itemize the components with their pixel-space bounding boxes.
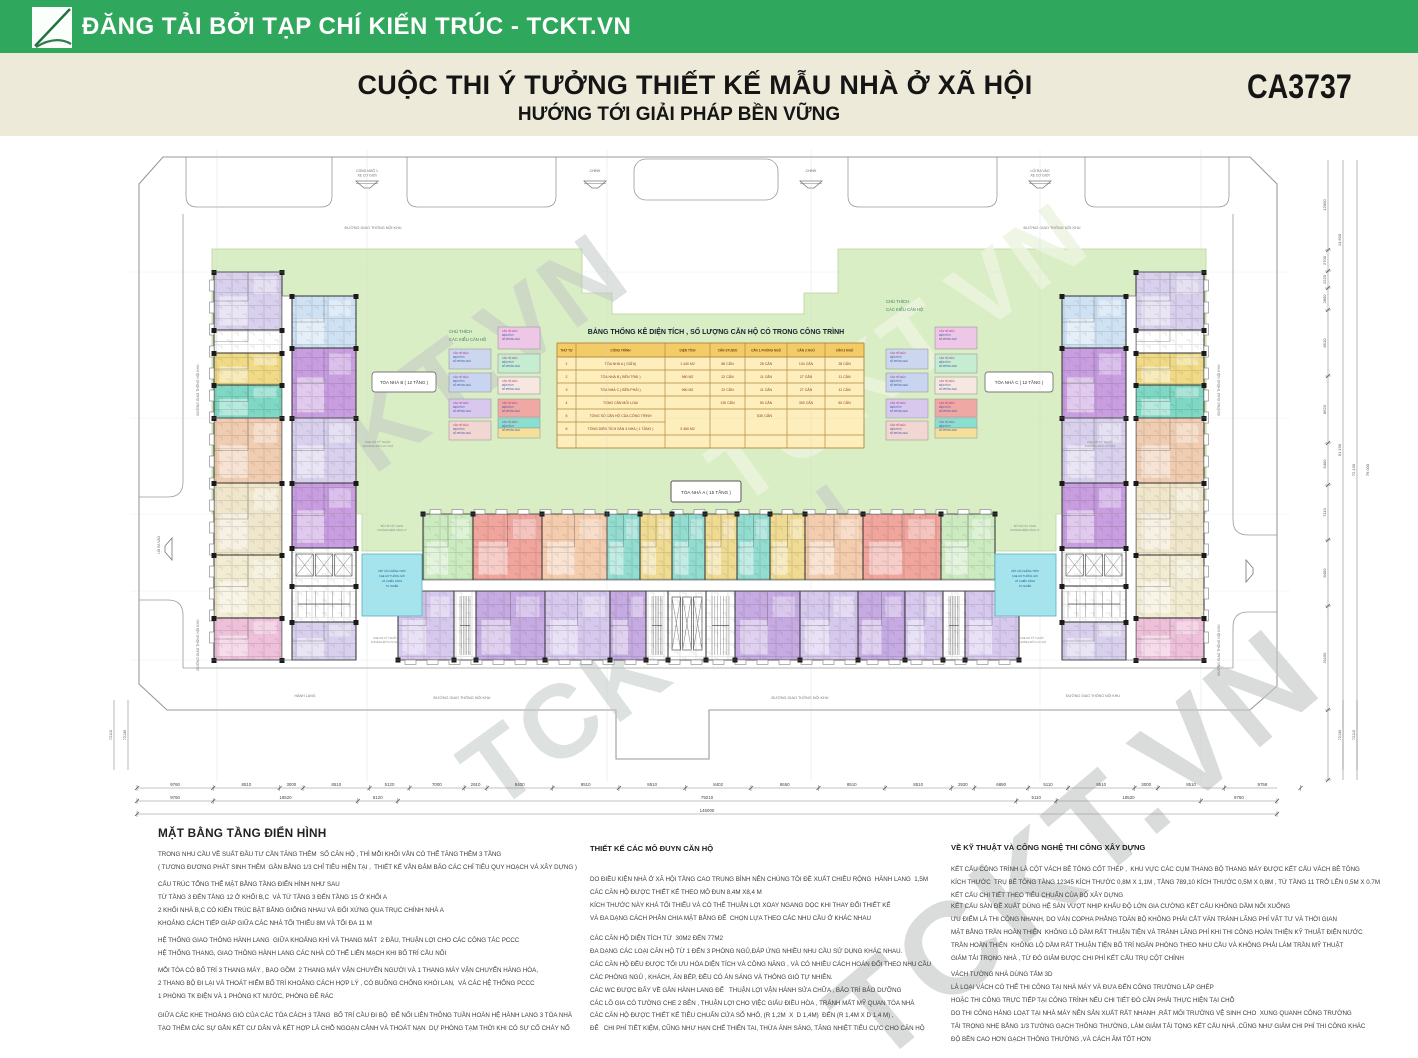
svg-text:DIỆN TÍCH: DIỆN TÍCH — [502, 361, 514, 364]
svg-text:DIỆN TÍCH: DIỆN TÍCH — [939, 361, 951, 364]
svg-text:22 CĂN: 22 CĂN — [721, 388, 734, 392]
svg-text:2930: 2930 — [958, 782, 968, 787]
svg-text:DIỆN TÍCH: DIỆN TÍCH — [453, 406, 465, 409]
svg-text:6890: 6890 — [996, 782, 1006, 787]
svg-text:12000: 12000 — [1322, 199, 1327, 211]
svg-text:CĂN HỘ KIỂU: CĂN HỘ KIỂU — [939, 402, 955, 405]
svg-text:ĐƯỜNG GIAO THÔNG NỘI KHU: ĐƯỜNG GIAO THÔNG NỘI KHU — [195, 619, 200, 671]
svg-text:76 000: 76 000 — [1365, 463, 1370, 476]
svg-text:ĐƯỜNG GIAO THÔNG NỘI KHU: ĐƯỜNG GIAO THÔNG NỘI KHU — [1066, 693, 1120, 698]
svg-text:DIỆN TÍCH: DIỆN TÍCH — [680, 348, 697, 353]
svg-text:CHÚ THÍCH: CHÚ THÍCH — [449, 329, 472, 334]
svg-text:CĂN HỘ KIỂU: CĂN HỘ KIỂU — [502, 402, 518, 405]
svg-text:9760: 9760 — [170, 782, 180, 787]
svg-text:CĂN HỘ KIỂU: CĂN HỘ KIỂU — [939, 380, 955, 383]
svg-text:22 CĂN: 22 CĂN — [721, 375, 734, 379]
svg-text:SỐ PHÒNG NGỦ: SỐ PHÒNG NGỦ — [890, 410, 908, 413]
svg-text:CĂN HỘ KIỂU: CĂN HỘ KIỂU — [890, 352, 906, 355]
svg-text:CĂN 2 NGỦ: CĂN 2 NGỦ — [797, 348, 815, 353]
svg-text:LỐI RA VÀO: LỐI RA VÀO — [156, 536, 161, 554]
svg-text:8402: 8402 — [713, 782, 723, 787]
svg-text:27 CĂN: 27 CĂN — [800, 388, 813, 392]
svg-text:146000: 146000 — [700, 808, 715, 813]
svg-text:CÁC KIỂU CĂN HỘ: CÁC KIỂU CĂN HỘ — [449, 337, 487, 342]
svg-text:8510: 8510 — [847, 782, 857, 787]
svg-text:5400: 5400 — [1322, 459, 1327, 469]
svg-text:8510: 8510 — [1186, 782, 1196, 787]
svg-text:SỐ PHÒNG NGỦ: SỐ PHÒNG NGỦ — [502, 365, 520, 368]
svg-text:3 460 M2: 3 460 M2 — [680, 427, 695, 431]
svg-text:50 CĂN: 50 CĂN — [760, 401, 773, 405]
svg-text:DIỆN TÍCH: DIỆN TÍCH — [453, 380, 465, 383]
svg-text:79210: 79210 — [701, 795, 714, 800]
svg-text:3000: 3000 — [286, 782, 296, 787]
svg-text:ĐƯỜNG GIAO THÔNG NỘI KHU: ĐƯỜNG GIAO THÔNG NỘI KHU — [1023, 225, 1080, 230]
svg-text:CĂN HỘ KIỂU: CĂN HỘ KIỂU — [939, 330, 955, 333]
svg-text:8400: 8400 — [515, 782, 525, 787]
svg-text:2: 2 — [566, 375, 568, 379]
svg-text:ĐƯỜNG GIAO THÔNG NỘI KHU: ĐƯỜNG GIAO THÔNG NỘI KHU — [1216, 364, 1221, 416]
svg-text:KHOẢNG ĐỐI LƯU GIÓ: KHOẢNG ĐỐI LƯU GIÓ — [363, 443, 394, 448]
svg-text:CĂN HỘ KIỂU: CĂN HỘ KIỂU — [502, 357, 518, 360]
svg-text:130 CĂN: 130 CĂN — [720, 401, 735, 405]
svg-text:18520: 18520 — [279, 795, 292, 800]
svg-text:CÔNG TRÌNH: CÔNG TRÌNH — [610, 348, 631, 353]
svg-text:TỔNG CĂN MỖI LOẠI: TỔNG CĂN MỖI LOẠI — [603, 400, 638, 405]
svg-text:ĐƯỜNG GIAO THÔNG NỘI KHU: ĐƯỜNG GIAO THÔNG NỘI KHU — [344, 225, 401, 230]
svg-text:51 190: 51 190 — [1337, 443, 1342, 456]
svg-text:TÒA NHÀ C ( BÊN PHẢI ): TÒA NHÀ C ( BÊN PHẢI ) — [600, 387, 640, 392]
svg-text:2700: 2700 — [1322, 255, 1327, 265]
svg-text:CHÍNH: CHÍNH — [590, 169, 601, 173]
svg-text:KHE HỞ KỸ THUẬT: KHE HỞ KỸ THUẬT — [1020, 635, 1044, 640]
svg-text:72 130: 72 130 — [1351, 463, 1356, 476]
svg-text:8510: 8510 — [1322, 338, 1327, 348]
svg-text:ĐƯỜNG GIAO THÔNG NỘI KHU: ĐƯỜNG GIAO THÔNG NỘI KHU — [433, 695, 490, 700]
svg-text:8650: 8650 — [780, 782, 790, 787]
svg-text:DIỆN TÍCH: DIỆN TÍCH — [502, 406, 514, 409]
svg-text:7110: 7110 — [1322, 507, 1327, 516]
svg-text:72130: 72130 — [1338, 730, 1342, 741]
svg-text:CĂN HỘ KIỂU: CĂN HỘ KIỂU — [453, 376, 469, 379]
svg-text:SỐ PHÒNG NGỦ: SỐ PHÒNG NGỦ — [939, 429, 957, 432]
svg-text:3000: 3000 — [1141, 782, 1151, 787]
svg-text:2220: 2220 — [1322, 274, 1327, 284]
svg-text:28 CĂN: 28 CĂN — [760, 362, 773, 366]
svg-text:72110: 72110 — [109, 730, 113, 740]
svg-text:8510: 8510 — [913, 782, 923, 787]
svg-text:3: 3 — [566, 388, 568, 392]
svg-text:530 CĂN: 530 CĂN — [757, 414, 772, 418]
svg-text:CĂN HỘ KIỂU: CĂN HỘ KIỂU — [890, 376, 906, 379]
svg-text:TÒA NHÀ B ( BÊN TRÁI ): TÒA NHÀ B ( BÊN TRÁI ) — [601, 374, 641, 379]
svg-text:CÁC KIỂU CĂN HỘ: CÁC KIỂU CĂN HỘ — [886, 307, 924, 312]
svg-text:ĐƯỜNG GIAO THÔNG NỘI KHU: ĐƯỜNG GIAO THÔNG NỘI KHU — [771, 695, 828, 700]
svg-text:SỐ PHÒNG NGỦ: SỐ PHÒNG NGỦ — [890, 384, 908, 387]
svg-text:DIỆN TÍCH: DIỆN TÍCH — [890, 428, 902, 431]
svg-text:DIỆN TÍCH: DIỆN TÍCH — [939, 406, 951, 409]
svg-text:7000: 7000 — [432, 782, 442, 787]
svg-text:CHÍNH: CHÍNH — [806, 169, 817, 173]
svg-text:300 CĂN: 300 CĂN — [799, 401, 814, 405]
svg-text:TỔNG SỐ CĂN HỘ CỦA CÔNG TRÌNH: TỔNG SỐ CĂN HỘ CỦA CÔNG TRÌNH — [590, 413, 652, 418]
svg-text:8510: 8510 — [581, 782, 591, 787]
svg-text:SỐ PHÒNG NGỦ: SỐ PHÒNG NGỦ — [453, 360, 471, 363]
svg-text:DIỆN TÍCH: DIỆN TÍCH — [890, 380, 902, 383]
svg-text:DIỆN TÍCH: DIỆN TÍCH — [939, 384, 951, 387]
svg-text:DIỆN TÍCH: DIỆN TÍCH — [502, 425, 514, 428]
svg-text:SỐ PHÒNG NGỦ: SỐ PHÒNG NGỦ — [453, 410, 471, 413]
svg-text:21150: 21150 — [1322, 652, 1327, 664]
svg-text:TÒA NHÀ A ( GIỮA): TÒA NHÀ A ( GIỮA) — [605, 361, 637, 366]
svg-text:CĂN HỘ KIỂU: CĂN HỘ KIỂU — [453, 352, 469, 355]
svg-text:5: 5 — [566, 414, 568, 418]
svg-text:960 M2: 960 M2 — [682, 388, 694, 392]
svg-text:CĂN HỘ KIỂU: CĂN HỘ KIỂU — [939, 357, 955, 360]
svg-text:11 CĂN: 11 CĂN — [760, 375, 772, 379]
svg-text:DIỆN TÍCH: DIỆN TÍCH — [890, 406, 902, 409]
svg-text:11 CĂN: 11 CĂN — [839, 388, 851, 392]
svg-text:DIỆN TÍCH: DIỆN TÍCH — [502, 384, 514, 387]
svg-text:SỐ PHÒNG NGỦ: SỐ PHÒNG NGỦ — [890, 360, 908, 363]
svg-text:6: 6 — [566, 427, 568, 431]
svg-text:ĐƯỜNG GIAO THÔNG NỘI KHU: ĐƯỜNG GIAO THÔNG NỘI KHU — [195, 364, 200, 416]
svg-text:DIỆN TÍCH: DIỆN TÍCH — [939, 425, 951, 428]
svg-text:CĂN HỘ KIỂU: CĂN HỘ KIỂU — [890, 402, 906, 405]
svg-text:8510: 8510 — [331, 782, 341, 787]
svg-text:8510: 8510 — [1096, 782, 1106, 787]
svg-text:THỨ TỰ: THỨ TỰ — [560, 348, 573, 353]
svg-text:TÒA NHÀ C ( 12 TẦNG ): TÒA NHÀ C ( 12 TẦNG ) — [995, 380, 1044, 385]
svg-text:HÀNH LANG: HÀNH LANG — [295, 694, 316, 698]
svg-text:8510: 8510 — [242, 782, 252, 787]
svg-text:SỐ PHÒNG NGỦ: SỐ PHÒNG NGỦ — [502, 338, 520, 341]
svg-text:27 CĂN: 27 CĂN — [800, 375, 813, 379]
svg-text:SỐ PHÒNG NGỦ: SỐ PHÒNG NGỦ — [939, 410, 957, 413]
svg-text:CĂN HỘ KIỂU: CĂN HỘ KIỂU — [453, 424, 469, 427]
svg-text:SỐ PHÒNG NGỦ: SỐ PHÒNG NGỦ — [939, 338, 957, 341]
svg-text:72130: 72130 — [123, 730, 127, 741]
svg-text:SỐ PHÒNG NGỦ: SỐ PHÒNG NGỦ — [502, 429, 520, 432]
svg-text:CĂN STUDIO: CĂN STUDIO — [718, 348, 738, 353]
svg-text:5120: 5120 — [373, 795, 383, 800]
svg-text:5110: 5110 — [1032, 795, 1042, 800]
svg-text:CĂN HỘ KIỂU: CĂN HỘ KIỂU — [453, 402, 469, 405]
svg-text:SỐ PHÒNG NGỦ: SỐ PHÒNG NGỦ — [453, 384, 471, 387]
svg-text:SỐ PHÒNG NGỦ: SỐ PHÒNG NGỦ — [890, 432, 908, 435]
svg-text:SỐ PHÒNG NGỦ: SỐ PHÒNG NGỦ — [939, 388, 957, 391]
svg-text:SỐ PHÒNG NGỦ: SỐ PHÒNG NGỦ — [502, 388, 520, 391]
svg-text:4: 4 — [566, 401, 568, 405]
svg-text:9760: 9760 — [170, 795, 180, 800]
svg-text:50 CĂN: 50 CĂN — [838, 401, 851, 405]
svg-text:1 440 M2: 1 440 M2 — [680, 362, 695, 366]
svg-text:5110: 5110 — [1043, 782, 1053, 787]
svg-text:11 CĂN: 11 CĂN — [760, 388, 772, 392]
svg-text:KHE HỞ KỸ THUẬT: KHE HỞ KỸ THUẬT — [373, 635, 397, 640]
svg-text:8400: 8400 — [1322, 568, 1327, 578]
svg-text:8510: 8510 — [647, 782, 657, 787]
svg-text:TỔNG DIỆN TÍCH SÀN 3 NHÀ ( 1 T: TỔNG DIỆN TÍCH SÀN 3 NHÀ ( 1 TẦNG ) — [588, 426, 654, 431]
svg-text:DIỆN TÍCH: DIỆN TÍCH — [890, 356, 902, 359]
svg-text:72110: 72110 — [1352, 730, 1356, 740]
svg-text:9758: 9758 — [1258, 782, 1268, 787]
svg-text:DIỆN TÍCH: DIỆN TÍCH — [453, 356, 465, 359]
svg-text:CĂN HỘ KIỂU: CĂN HỘ KIỂU — [502, 330, 518, 333]
svg-text:8620: 8620 — [1322, 404, 1327, 414]
svg-text:SỐ PHÒNG NGỦ: SỐ PHÒNG NGỦ — [502, 410, 520, 413]
svg-text:TÒA NHÀ A ( 15 TẦNG ): TÒA NHÀ A ( 15 TẦNG ) — [681, 489, 731, 495]
svg-text:11 CĂN: 11 CĂN — [839, 375, 851, 379]
svg-text:9760: 9760 — [1234, 795, 1244, 800]
svg-text:CĂN HỘ KIỂU: CĂN HỘ KIỂU — [939, 421, 955, 424]
svg-text:SỐ PHÒNG NGỦ: SỐ PHÒNG NGỦ — [453, 432, 471, 435]
svg-text:CĂN 1 PHÒNG NGỦ: CĂN 1 PHÒNG NGỦ — [751, 348, 782, 353]
svg-text:TÒA NHÀ B ( 12 TẦNG ): TÒA NHÀ B ( 12 TẦNG ) — [380, 380, 429, 385]
svg-text:CHÚ THÍCH: CHÚ THÍCH — [886, 299, 909, 304]
svg-text:5120: 5120 — [385, 782, 395, 787]
svg-text:CĂN HỘ KIỂU: CĂN HỘ KIỂU — [502, 421, 518, 424]
svg-text:14 600: 14 600 — [1337, 233, 1342, 246]
svg-text:DIỆN TÍCH: DIỆN TÍCH — [453, 428, 465, 431]
svg-text:CĂN HỘ KIỂU: CĂN HỘ KIỂU — [890, 424, 906, 427]
svg-text:104 CĂN: 104 CĂN — [799, 362, 814, 366]
svg-text:2910: 2910 — [471, 782, 481, 787]
svg-text:DIỆN TÍCH: DIỆN TÍCH — [939, 334, 951, 337]
svg-text:18520: 18520 — [1122, 795, 1135, 800]
svg-text:DIỆN TÍCH: DIỆN TÍCH — [502, 334, 514, 337]
svg-text:1: 1 — [566, 362, 568, 366]
svg-text:28 CĂN: 28 CĂN — [838, 362, 851, 366]
svg-text:2850: 2850 — [1322, 294, 1327, 304]
svg-text:CĂN HỘ KIỂU: CĂN HỘ KIỂU — [502, 380, 518, 383]
svg-text:KHOẢNG ĐỐI LƯU GIÓ: KHOẢNG ĐỐI LƯU GIÓ — [1085, 443, 1116, 448]
svg-text:86 CĂN: 86 CĂN — [721, 362, 734, 366]
svg-text:960 M2: 960 M2 — [682, 375, 694, 379]
svg-text:CĂN 3 NGỦ: CĂN 3 NGỦ — [836, 348, 854, 353]
svg-text:SỐ PHÒNG NGỦ: SỐ PHÒNG NGỦ — [939, 365, 957, 368]
svg-text:ĐƯỜNG GIAO THÔNG NỘI KHU: ĐƯỜNG GIAO THÔNG NỘI KHU — [1216, 624, 1221, 676]
